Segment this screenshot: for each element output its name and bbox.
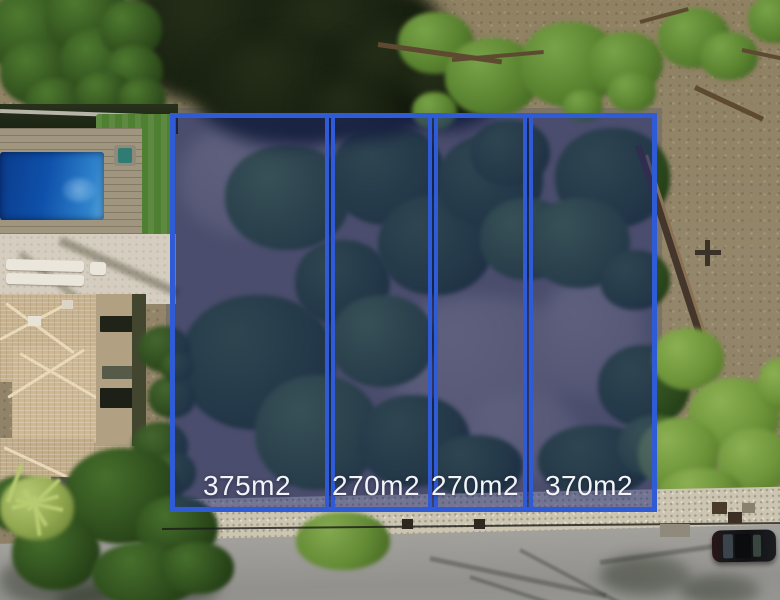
plot-divider	[325, 118, 335, 507]
plot-label-4: 370m2	[545, 470, 633, 502]
paver	[742, 503, 755, 513]
plot-divider	[523, 118, 533, 507]
plot-overlay: 375m2 270m2 270m2 370m2	[170, 113, 657, 512]
parked-car	[712, 529, 777, 562]
car-roof	[735, 534, 751, 558]
aerial-photo: 375m2 270m2 270m2 370m2	[0, 0, 780, 600]
roadside-post	[402, 519, 413, 529]
plot-label-3: 270m2	[431, 470, 519, 502]
manhole-cover	[660, 524, 690, 537]
car-rear-window	[753, 535, 761, 557]
plot-label-1: 375m2	[203, 470, 291, 502]
paver	[712, 502, 727, 514]
car-windshield	[723, 534, 733, 558]
plot-divider	[428, 118, 438, 507]
roadside-post	[474, 519, 485, 529]
paver	[728, 512, 742, 523]
plot-label-2: 270m2	[332, 470, 420, 502]
